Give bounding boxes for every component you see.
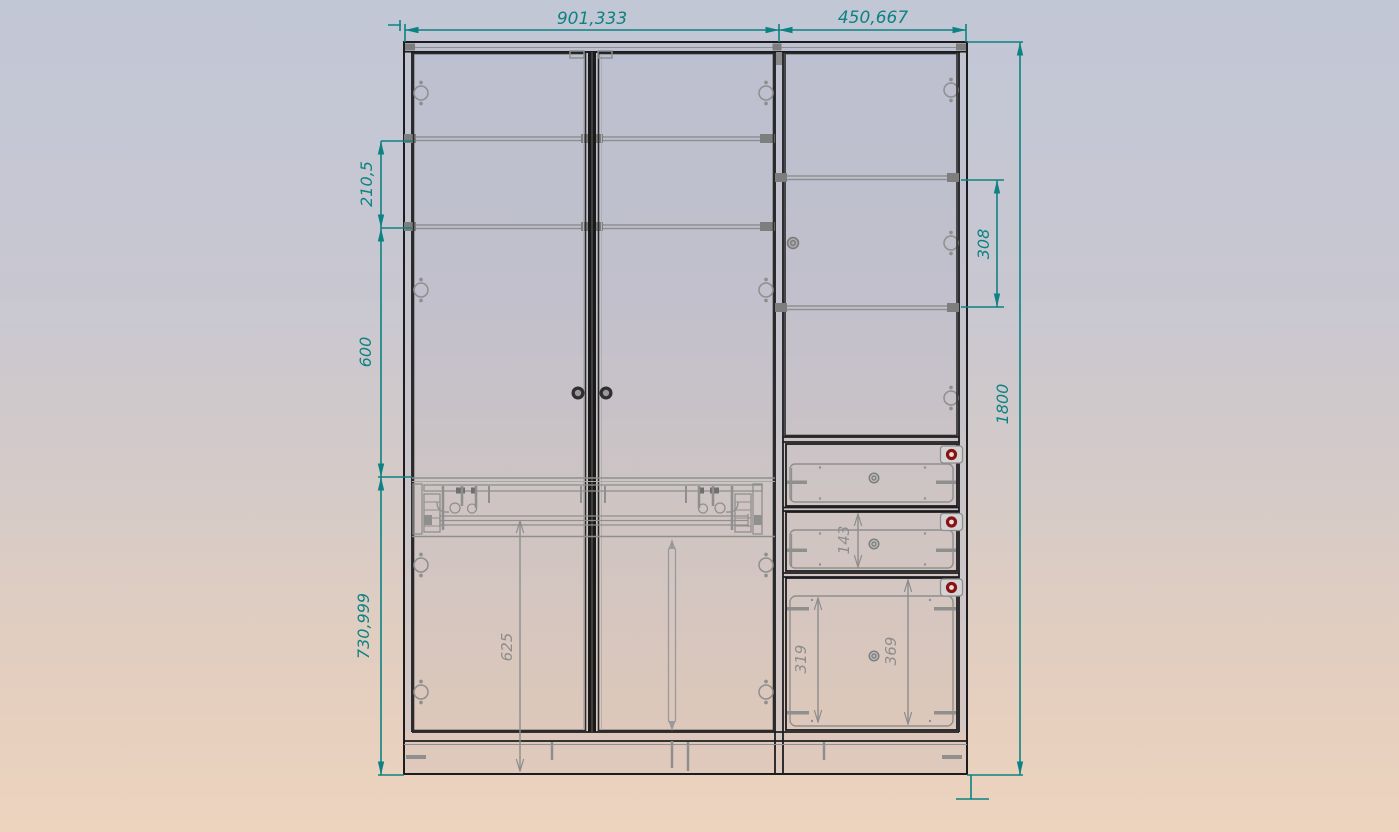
dim-label-upper-shelf-spacing[interactable]: 210,5 — [357, 161, 376, 207]
dim-label-right-shelf-spacing[interactable]: 308 — [974, 229, 993, 260]
dim-label-bottom-drawer-front-height[interactable]: 369 — [882, 637, 900, 666]
left-door-knob[interactable] — [572, 387, 585, 400]
drawer-grommet — [869, 473, 879, 483]
center-door-divider — [588, 52, 596, 732]
drawer-red-knob[interactable] — [941, 446, 963, 463]
drawer-red-knob[interactable] — [941, 579, 963, 596]
dim-label-middle-drawer-height[interactable]: 143 — [835, 526, 853, 555]
drawer-grommet — [869, 539, 879, 549]
cad-viewport[interactable]: 901,333 450,667 210,5 600 730,999 308 18… — [0, 0, 1399, 832]
side-door-knob[interactable] — [788, 238, 799, 249]
right-door-knob[interactable] — [600, 387, 613, 400]
dim-label-width-left-section[interactable]: 901,333 — [557, 9, 627, 29]
drawer-grommet — [869, 651, 879, 661]
dim-label-width-right-section[interactable]: 450,667 — [838, 8, 908, 28]
dim-label-lower-door-height[interactable]: 625 — [498, 633, 516, 662]
dim-label-bottom-drawer-opening-height[interactable]: 319 — [792, 645, 810, 674]
dim-label-middle-zone-height[interactable]: 600 — [356, 337, 375, 368]
drawer-red-knob[interactable] — [941, 514, 963, 531]
dim-label-lower-zone-height[interactable]: 730,999 — [354, 593, 373, 659]
dim-label-overall-height[interactable]: 1800 — [993, 384, 1012, 425]
